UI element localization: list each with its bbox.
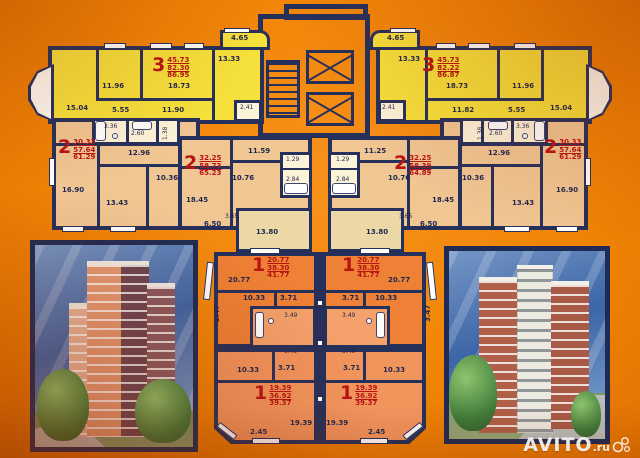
room-area-label: 5.55 bbox=[508, 106, 525, 114]
service-shaft bbox=[315, 252, 325, 444]
apartment-areas: 32.2558.7365.23 bbox=[199, 154, 221, 178]
bay-window-left bbox=[28, 64, 54, 122]
room-area-label: 11.96 bbox=[512, 82, 534, 90]
room-area-label: 1.29 bbox=[336, 156, 349, 163]
room-area-label: 13.43 bbox=[512, 199, 534, 207]
room-area-label: 15.04 bbox=[66, 104, 88, 112]
room-area-label: 1.29 bbox=[286, 156, 299, 163]
room-area-label: 15.04 bbox=[550, 104, 572, 112]
room-area-label: 11.96 bbox=[102, 82, 124, 90]
apt-1-lower-right-summary: 119.3936.9239.37 bbox=[340, 384, 377, 408]
room-area-label: 3.49 bbox=[342, 348, 355, 355]
room-area-label: 1.38 bbox=[477, 127, 484, 140]
room-area-label: 10.36 bbox=[156, 174, 178, 182]
apartment-room-count: 1 bbox=[254, 384, 267, 403]
floorplan-page: 345.7382.3086.95345.7382.2286.87230.3357… bbox=[0, 0, 640, 458]
tree bbox=[135, 379, 191, 443]
room-area-label: 16.90 bbox=[556, 186, 578, 194]
apartment-areas: 20.7738.3041.77 bbox=[267, 256, 289, 280]
apartment-room-count: 3 bbox=[422, 56, 435, 75]
room-area-label: 2.84 bbox=[336, 176, 349, 183]
bay-window-right bbox=[586, 64, 612, 122]
watermark-brand: AVITO bbox=[523, 434, 592, 456]
room-area-label: 10.33 bbox=[375, 294, 397, 302]
room-area-label: 20.77 bbox=[228, 276, 250, 284]
room-area-label: 3.65 bbox=[225, 213, 238, 220]
room-area-label: 2.60 bbox=[131, 130, 144, 137]
tree bbox=[449, 355, 497, 431]
apt-1-lower-left-summary: 119.3936.9239.37 bbox=[254, 384, 291, 408]
apt-2-left-summary: 230.3357.6461.29 bbox=[58, 138, 95, 162]
room-area-label: 2.60 bbox=[489, 130, 502, 137]
room-area-label: 4.65 bbox=[387, 34, 404, 42]
apt-3-left-summary: 345.7382.3086.95 bbox=[152, 56, 189, 80]
room-area-label: 20.77 bbox=[388, 276, 410, 284]
elevator-shaft bbox=[306, 50, 354, 84]
apartment-areas: 19.3936.9239.37 bbox=[355, 384, 377, 408]
room-area-label: 11.25 bbox=[364, 147, 386, 155]
room-area-label: 5.55 bbox=[112, 106, 129, 114]
apartment-room-count: 1 bbox=[342, 256, 355, 275]
room-area-label: 10.33 bbox=[383, 366, 405, 374]
room-area-label: 4.65 bbox=[231, 34, 248, 42]
apartment-areas: 30.3357.6461.29 bbox=[559, 138, 581, 162]
room-area-label: 13.33 bbox=[218, 55, 240, 63]
room-area-label: 3.71 bbox=[278, 364, 295, 372]
room-area-label: 3.49 bbox=[342, 312, 355, 319]
room-area-label: 18.45 bbox=[186, 196, 208, 204]
building-photo-left bbox=[30, 240, 198, 452]
balcony-window bbox=[426, 262, 437, 301]
apartment-room-count: 1 bbox=[340, 384, 353, 403]
room-area-label: 3.36 bbox=[104, 123, 117, 130]
apt-2-right-summary: 230.3357.6461.29 bbox=[544, 138, 581, 162]
room-area-label: 11.59 bbox=[248, 147, 270, 155]
room-area-label: 18.73 bbox=[168, 82, 190, 90]
apt-1-upper-right-summary: 120.7738.3041.77 bbox=[342, 256, 379, 280]
room-area-label: 18.73 bbox=[446, 82, 468, 90]
room-area-label: 10.33 bbox=[243, 294, 265, 302]
room-area-label: 3.47 bbox=[424, 305, 432, 322]
room-area-label: 1.38 bbox=[162, 127, 169, 140]
apartment-room-count: 2 bbox=[544, 138, 557, 157]
room-area-label: 12.96 bbox=[488, 149, 510, 157]
room-area-label: 2.41 bbox=[240, 104, 253, 111]
room-area-label: 3.71 bbox=[343, 364, 360, 372]
room-area-label: 13.33 bbox=[398, 55, 420, 63]
avito-watermark: AVITO.ru bbox=[523, 431, 632, 456]
room-area-label: 2.41 bbox=[382, 104, 395, 111]
apartment-room-count: 2 bbox=[58, 138, 71, 157]
apartment-room-count: 3 bbox=[152, 56, 165, 75]
window bbox=[252, 438, 280, 444]
room-area-label: 10.76 bbox=[232, 174, 254, 182]
avito-logo-icon bbox=[612, 435, 632, 455]
room-area-label: 12.96 bbox=[128, 149, 150, 157]
room-area-label: 3.36 bbox=[516, 123, 529, 130]
room-area-label: 13.80 bbox=[256, 228, 278, 236]
apartment-areas: 45.7382.3086.95 bbox=[167, 56, 189, 80]
room-area-label: 3.49 bbox=[284, 312, 297, 319]
room-area-label: 3.47 bbox=[213, 305, 221, 322]
tree bbox=[37, 369, 89, 441]
apartment-areas: 32.2558.3964.89 bbox=[409, 154, 431, 178]
room-area-label: 18.45 bbox=[432, 196, 454, 204]
apartment-areas: 45.7382.2286.87 bbox=[437, 56, 459, 80]
staircase bbox=[266, 60, 300, 118]
building-photo-right bbox=[444, 246, 610, 444]
room-area-label: 13.43 bbox=[106, 199, 128, 207]
room-area-label: 2.45 bbox=[250, 428, 267, 436]
room-area-label: 3.71 bbox=[342, 294, 359, 302]
room-area-label: 10.36 bbox=[462, 174, 484, 182]
apt-1-upper-left-summary: 120.7738.3041.77 bbox=[252, 256, 289, 280]
apartment-areas: 20.7738.3041.77 bbox=[357, 256, 379, 280]
watermark-tld: .ru bbox=[593, 441, 610, 454]
room-area-label: 16.90 bbox=[62, 186, 84, 194]
apartment-room-count: 2 bbox=[394, 154, 407, 173]
apt-2-center-left-summary: 232.2558.7365.23 bbox=[184, 154, 221, 178]
room-area-label: 3.65 bbox=[399, 213, 412, 220]
room-area-label: 11.90 bbox=[162, 106, 184, 114]
apartment-room-count: 1 bbox=[252, 256, 265, 275]
apartment-areas: 30.3357.6461.29 bbox=[73, 138, 95, 162]
room-area-label: 6.50 bbox=[420, 220, 437, 228]
apt-3-right-summary: 345.7382.2286.87 bbox=[422, 56, 459, 80]
room-area-label: 19.39 bbox=[326, 419, 348, 427]
tower-center bbox=[517, 265, 553, 433]
room-area-label: 2.84 bbox=[286, 176, 299, 183]
room-area-label: 10.76 bbox=[388, 174, 410, 182]
room-area-label: 10.33 bbox=[237, 366, 259, 374]
apartment-room-count: 2 bbox=[184, 154, 197, 173]
room-area-label: 3.49 bbox=[284, 348, 297, 355]
balcony-window bbox=[203, 262, 214, 301]
room-area-label: 11.82 bbox=[452, 106, 474, 114]
core-notch bbox=[284, 4, 368, 20]
room-area-label: 13.80 bbox=[366, 228, 388, 236]
window bbox=[360, 438, 388, 444]
elevator-shaft bbox=[306, 92, 354, 126]
room-area-label: 2.45 bbox=[368, 428, 385, 436]
room-area-label: 3.71 bbox=[280, 294, 297, 302]
room-area-label: 19.39 bbox=[290, 419, 312, 427]
room-area-label: 6.50 bbox=[204, 220, 221, 228]
apartment-areas: 19.3936.9239.37 bbox=[269, 384, 291, 408]
